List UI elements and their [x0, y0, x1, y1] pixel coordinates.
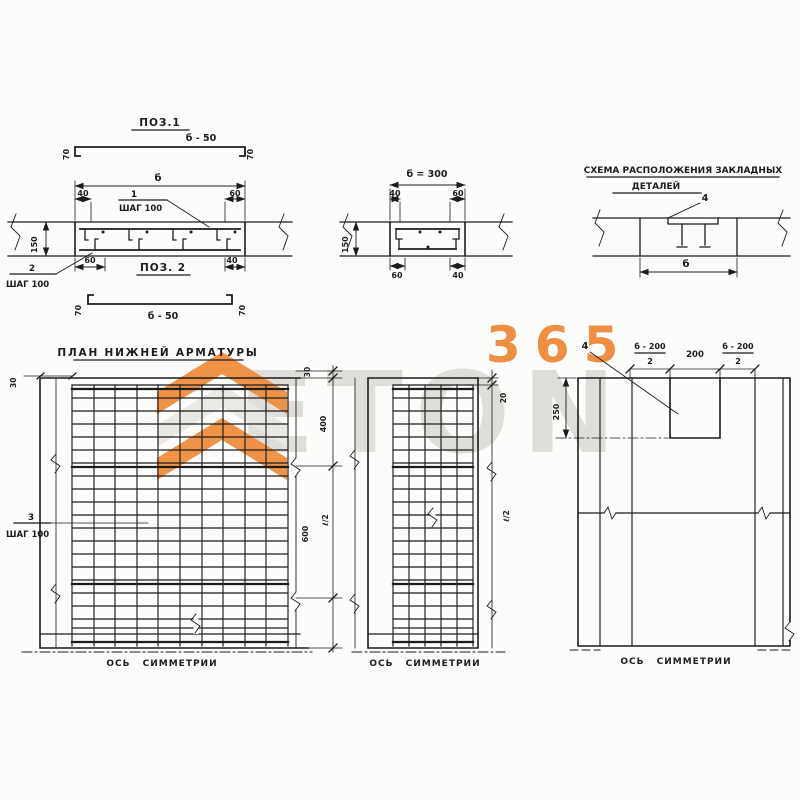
b300-dim-bottom-left: 60 — [391, 271, 403, 280]
frac-right-denominator: 2 — [735, 357, 741, 366]
plan-left-half-length: ℓ/2 — [321, 514, 330, 527]
drawing-canvas: ПОЗ.1 б - 50 70 70 б 40 60 1 — [0, 0, 800, 800]
plan-mid-axis-label: ОСЬ СИММЕТРИИ — [369, 659, 480, 669]
schema-width-label: б — [683, 258, 690, 270]
plan-left-edge-dim: 30 — [9, 378, 18, 388]
b300-dim-top-right: 60 — [452, 189, 464, 198]
plan-middle: 20 ℓ/2 ОСЬ СИММЕТРИИ — [350, 370, 511, 669]
section-width-label: б — [155, 172, 162, 184]
b300-dim-top-left: 40 — [389, 189, 401, 198]
pos1-hook-left-dim: 70 — [62, 148, 71, 160]
pos2-title: ПОЗ. 2 — [140, 262, 186, 274]
bar2-step-label: ШАГ 100 — [6, 280, 49, 290]
pos2-bar-detail: ПОЗ. 2 б - 50 70 70 — [74, 262, 247, 322]
plan-right-item-4: 4 — [582, 341, 589, 352]
pos1-length-label: б - 50 — [186, 133, 217, 144]
pos2-length-label: б - 50 — [148, 311, 179, 322]
bar1-number: 1 — [131, 190, 137, 200]
b300-width-label: б = 300 — [406, 169, 447, 180]
frac-right-numerator: б - 200 — [722, 341, 754, 351]
bar1-step-label: ШАГ 100 — [119, 204, 162, 214]
plan-right-embed: 4 б - 200 2 200 б - 200 2 250 ОСЬ СИММЕТ… — [552, 341, 794, 667]
pos1-hook-right-dim: 70 — [246, 148, 255, 160]
pos1-title: ПОЗ.1 — [139, 117, 180, 129]
plan-lower-reinforcement: ПЛАН НИЖНЕЙ АРМАТУРЫ 30 30 400 600 ℓ/2 3… — [6, 346, 342, 669]
pos1-bar-detail: ПОЗ.1 б - 50 70 70 — [62, 117, 255, 160]
plan-mid-edge-dim: 20 — [499, 393, 508, 403]
frac-left-denominator: 2 — [647, 357, 653, 366]
plan-left-chain-600: 600 — [301, 525, 310, 542]
bar3-step-label: ШАГ 100 — [6, 530, 49, 540]
embedded-parts-schema: СХЕМА РАСПОЛОЖЕНИЯ ЗАКЛАДНЫХ ДЕТАЛЕЙ 4 б — [584, 166, 790, 277]
schema-title-line2: ДЕТАЛЕЙ — [632, 180, 680, 192]
notch-depth-dim: 250 — [552, 403, 561, 420]
plan-right-axis-label: ОСЬ СИММЕТРИИ — [620, 657, 731, 667]
pos2-hook-right-dim: 70 — [238, 304, 247, 316]
blueprint-page: ETON 365 ПОЗ.1 б - 50 70 70 — [0, 0, 800, 800]
plan-left-title: ПЛАН НИЖНЕЙ АРМАТУРЫ — [57, 346, 258, 359]
schema-item-4: 4 — [702, 193, 709, 204]
dim-bottom-left: 60 — [84, 256, 96, 265]
cross-section-b300: б = 300 40 60 150 60 40 — [340, 169, 512, 280]
pos2-hook-left-dim: 70 — [74, 304, 83, 316]
b300-height-dim: 150 — [341, 236, 350, 253]
plan-left-axis-label: ОСЬ СИММЕТРИИ — [106, 659, 217, 669]
b300-dim-bottom-right: 40 — [452, 271, 464, 280]
plan-left-chain-30: 30 — [303, 367, 312, 377]
plan-left-chain-400: 400 — [319, 415, 328, 432]
section-height-dim: 150 — [30, 236, 39, 253]
bar3-number: 3 — [28, 513, 34, 523]
bar2-number: 2 — [29, 264, 35, 274]
schema-title-line1: СХЕМА РАСПОЛОЖЕНИЯ ЗАКЛАДНЫХ — [584, 166, 783, 176]
frac-left-numerator: б - 200 — [634, 341, 666, 351]
dim-bottom-right: 40 — [226, 256, 238, 265]
span-mid-dim: 200 — [686, 350, 704, 360]
dim-top-right: 60 — [229, 189, 241, 198]
plan-mid-half-length: ℓ/2 — [502, 510, 511, 523]
dim-top-left: 40 — [77, 189, 89, 198]
